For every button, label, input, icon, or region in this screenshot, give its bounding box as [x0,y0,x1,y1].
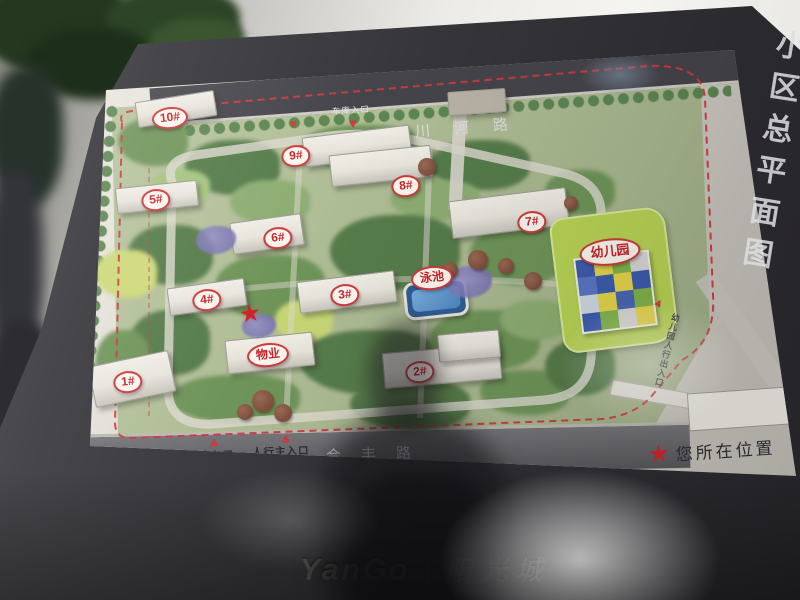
bottom-vignette [0,470,800,600]
photo-of-site-map-board: 川河路 合丰路 平阳路 10# 9# 8# 7# 6# 5# 4# 3# 2# … [0,0,800,600]
